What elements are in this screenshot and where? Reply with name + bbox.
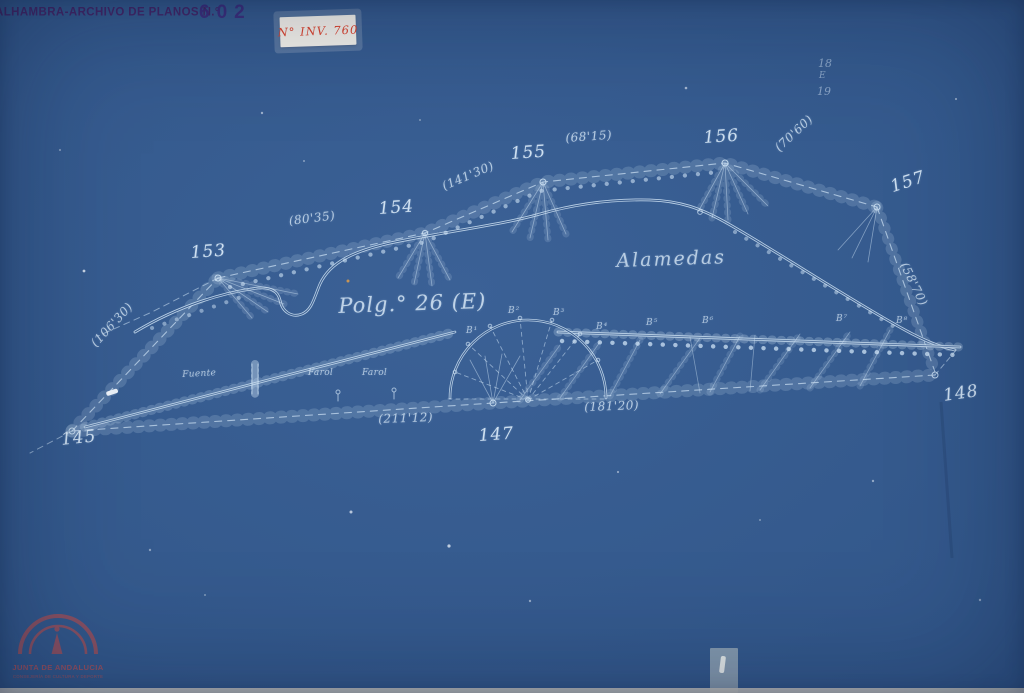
station-label-156: 156 [703, 126, 740, 148]
tape-highlight [719, 656, 726, 673]
bottom-scan-strip [0, 688, 1024, 693]
inventory-number: N° INV. 760 [277, 23, 358, 40]
blueprint-scan: JUNTA DE ANDALUCIA CONSEJERÍA DE CULTURA… [0, 0, 1024, 693]
point-marker-b7: B⁷ [836, 314, 848, 324]
point-marker-b1: B¹ [466, 326, 478, 336]
tape-fragment [710, 648, 738, 693]
point-marker-b8: B⁸ [896, 316, 908, 326]
corner-note-bottom: 19 [817, 85, 831, 98]
fountain-label: Fuente [182, 368, 216, 380]
station-label-147: 147 [478, 424, 515, 446]
point-marker-b5: B⁵ [646, 318, 658, 328]
junta-logo: JUNTA DE ANDALUCIA CONSEJERÍA DE CULTURA… [12, 616, 103, 679]
junta-org-text: JUNTA DE ANDALUCIA [12, 663, 103, 672]
plan-drawing-svg: JUNTA DE ANDALUCIA CONSEJERÍA DE CULTURA… [0, 0, 1024, 693]
station-label-145: 145 [60, 426, 97, 450]
distance-label-147-148: (181'20) [584, 398, 639, 414]
archive-stamp-number: 602 [199, 2, 252, 24]
point-marker-b2: B² [508, 306, 520, 316]
station-label-155: 155 [510, 142, 547, 164]
lamp-label-2: Farol [362, 368, 387, 378]
point-marker-b6: B⁶ [702, 316, 714, 326]
junta-figure-icon [52, 626, 63, 654]
corner-note-middle: E [819, 71, 826, 81]
point-marker-b4: B⁴ [596, 322, 608, 332]
archive-stamp-text: ALHAMBRA-ARCHIVO DE PLANOS N.° [0, 6, 220, 19]
station-label-153: 153 [190, 241, 227, 263]
station-label-154: 154 [378, 197, 415, 219]
corner-note-top: 18 [818, 57, 832, 70]
point-marker-b3: B³ [553, 308, 565, 318]
distance-label-145-147: (211'12) [378, 410, 433, 426]
junta-dept-text: CONSEJERÍA DE CULTURA Y DEPORTE [13, 674, 103, 679]
area-label: Alamedas [616, 246, 726, 272]
inventory-sticker: N° INV. 760 [279, 15, 356, 48]
lamp-label-1: Farol [308, 368, 333, 378]
